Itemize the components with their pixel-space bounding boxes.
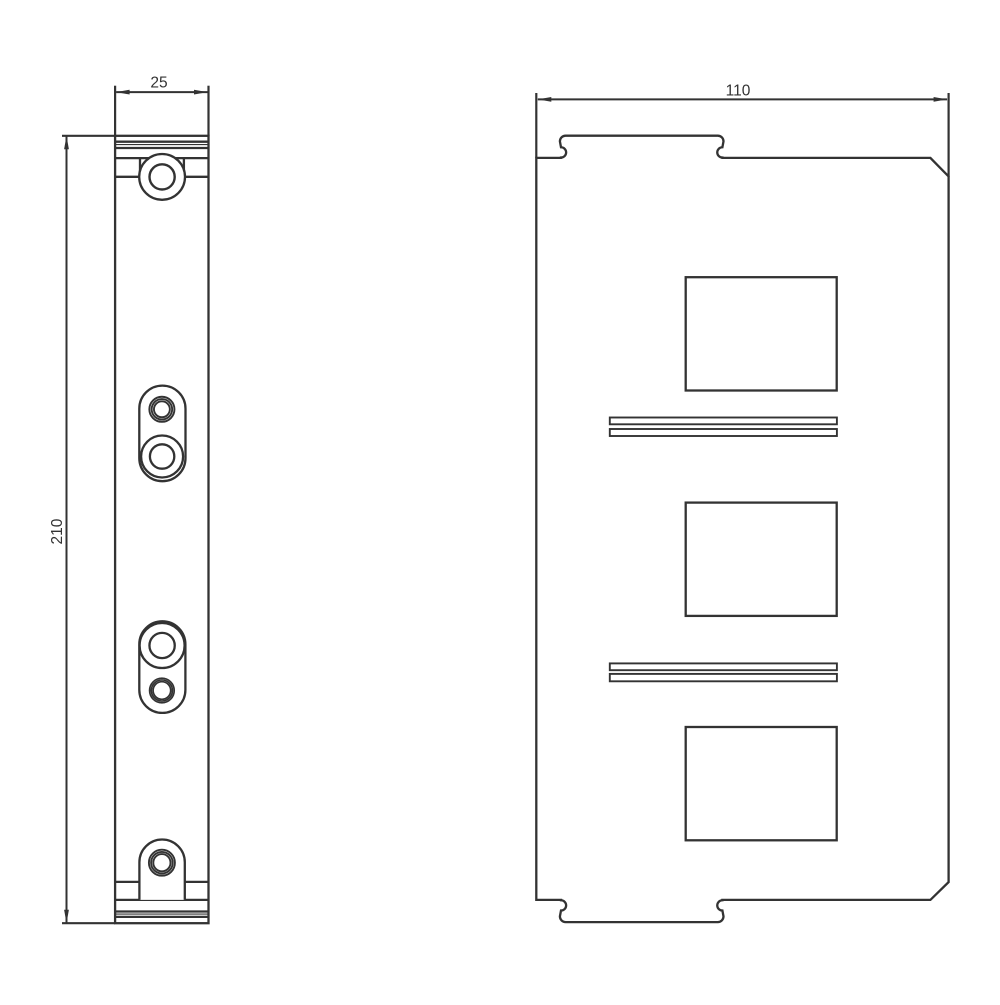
svg-text:110: 110: [726, 83, 751, 100]
svg-text:210: 210: [49, 518, 66, 544]
svg-text:25: 25: [150, 75, 167, 92]
